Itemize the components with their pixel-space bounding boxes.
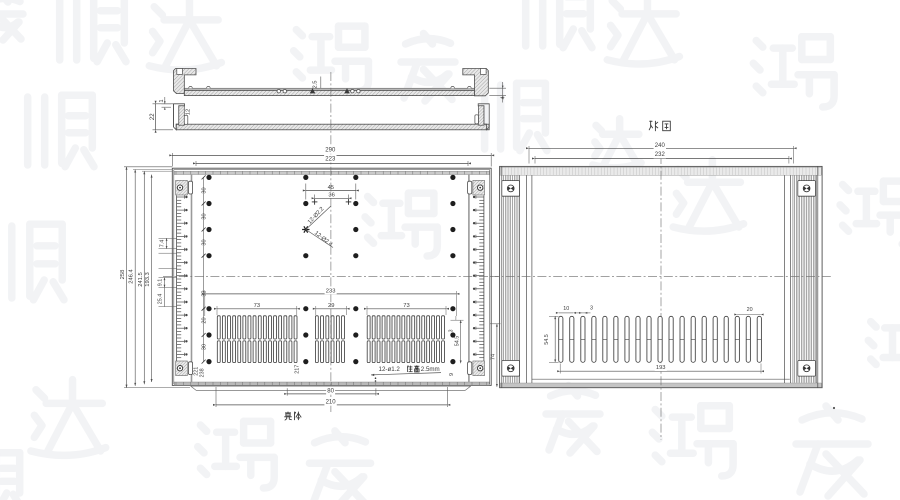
svg-text:9: 9 <box>449 373 455 376</box>
svg-text:210: 210 <box>326 400 337 406</box>
svg-text:3: 3 <box>448 329 454 332</box>
svg-text:30: 30 <box>202 187 208 193</box>
svg-text:54.5: 54.5 <box>544 334 550 345</box>
svg-text:3: 3 <box>590 306 593 312</box>
svg-text:20: 20 <box>747 307 753 313</box>
svg-text:1: 1 <box>159 100 165 103</box>
svg-text:193: 193 <box>656 365 666 371</box>
svg-text:223: 223 <box>325 156 336 162</box>
svg-text:10: 10 <box>563 306 569 312</box>
svg-text:73: 73 <box>403 303 409 309</box>
svg-text:30: 30 <box>202 344 208 350</box>
svg-text:73: 73 <box>254 303 260 309</box>
svg-text:193.3: 193.3 <box>145 272 151 287</box>
svg-text:240: 240 <box>655 143 666 149</box>
svg-text:36: 36 <box>328 193 334 199</box>
svg-text:7.4: 7.4 <box>160 240 166 248</box>
svg-text:54.5: 54.5 <box>454 336 460 347</box>
svg-text:2.5mm: 2.5mm <box>421 366 440 373</box>
svg-text:232: 232 <box>655 152 666 158</box>
svg-text:221: 221 <box>193 367 199 376</box>
svg-text:30: 30 <box>202 213 208 219</box>
svg-text:22: 22 <box>150 113 156 120</box>
svg-text:4: 4 <box>501 96 507 99</box>
svg-text:258: 258 <box>120 270 126 280</box>
svg-text:25.4: 25.4 <box>158 294 164 305</box>
svg-text:29: 29 <box>328 303 334 309</box>
svg-text:2.5: 2.5 <box>313 80 319 88</box>
svg-text:9.1: 9.1 <box>157 279 163 287</box>
svg-text:30: 30 <box>202 239 208 245</box>
svg-text:233: 233 <box>326 288 336 294</box>
svg-text:246.4: 246.4 <box>129 268 135 283</box>
svg-text:217: 217 <box>294 365 300 374</box>
svg-text:12: 12 <box>186 109 192 115</box>
svg-text:238: 238 <box>199 368 205 377</box>
svg-text:74: 74 <box>490 354 496 360</box>
svg-text:241.5: 241.5 <box>138 272 144 287</box>
svg-text:20: 20 <box>202 317 208 323</box>
svg-text:12-ø1.2: 12-ø1.2 <box>379 366 401 373</box>
svg-text:80: 80 <box>327 389 334 395</box>
svg-text:290: 290 <box>325 148 336 154</box>
svg-text:33: 33 <box>202 290 208 296</box>
